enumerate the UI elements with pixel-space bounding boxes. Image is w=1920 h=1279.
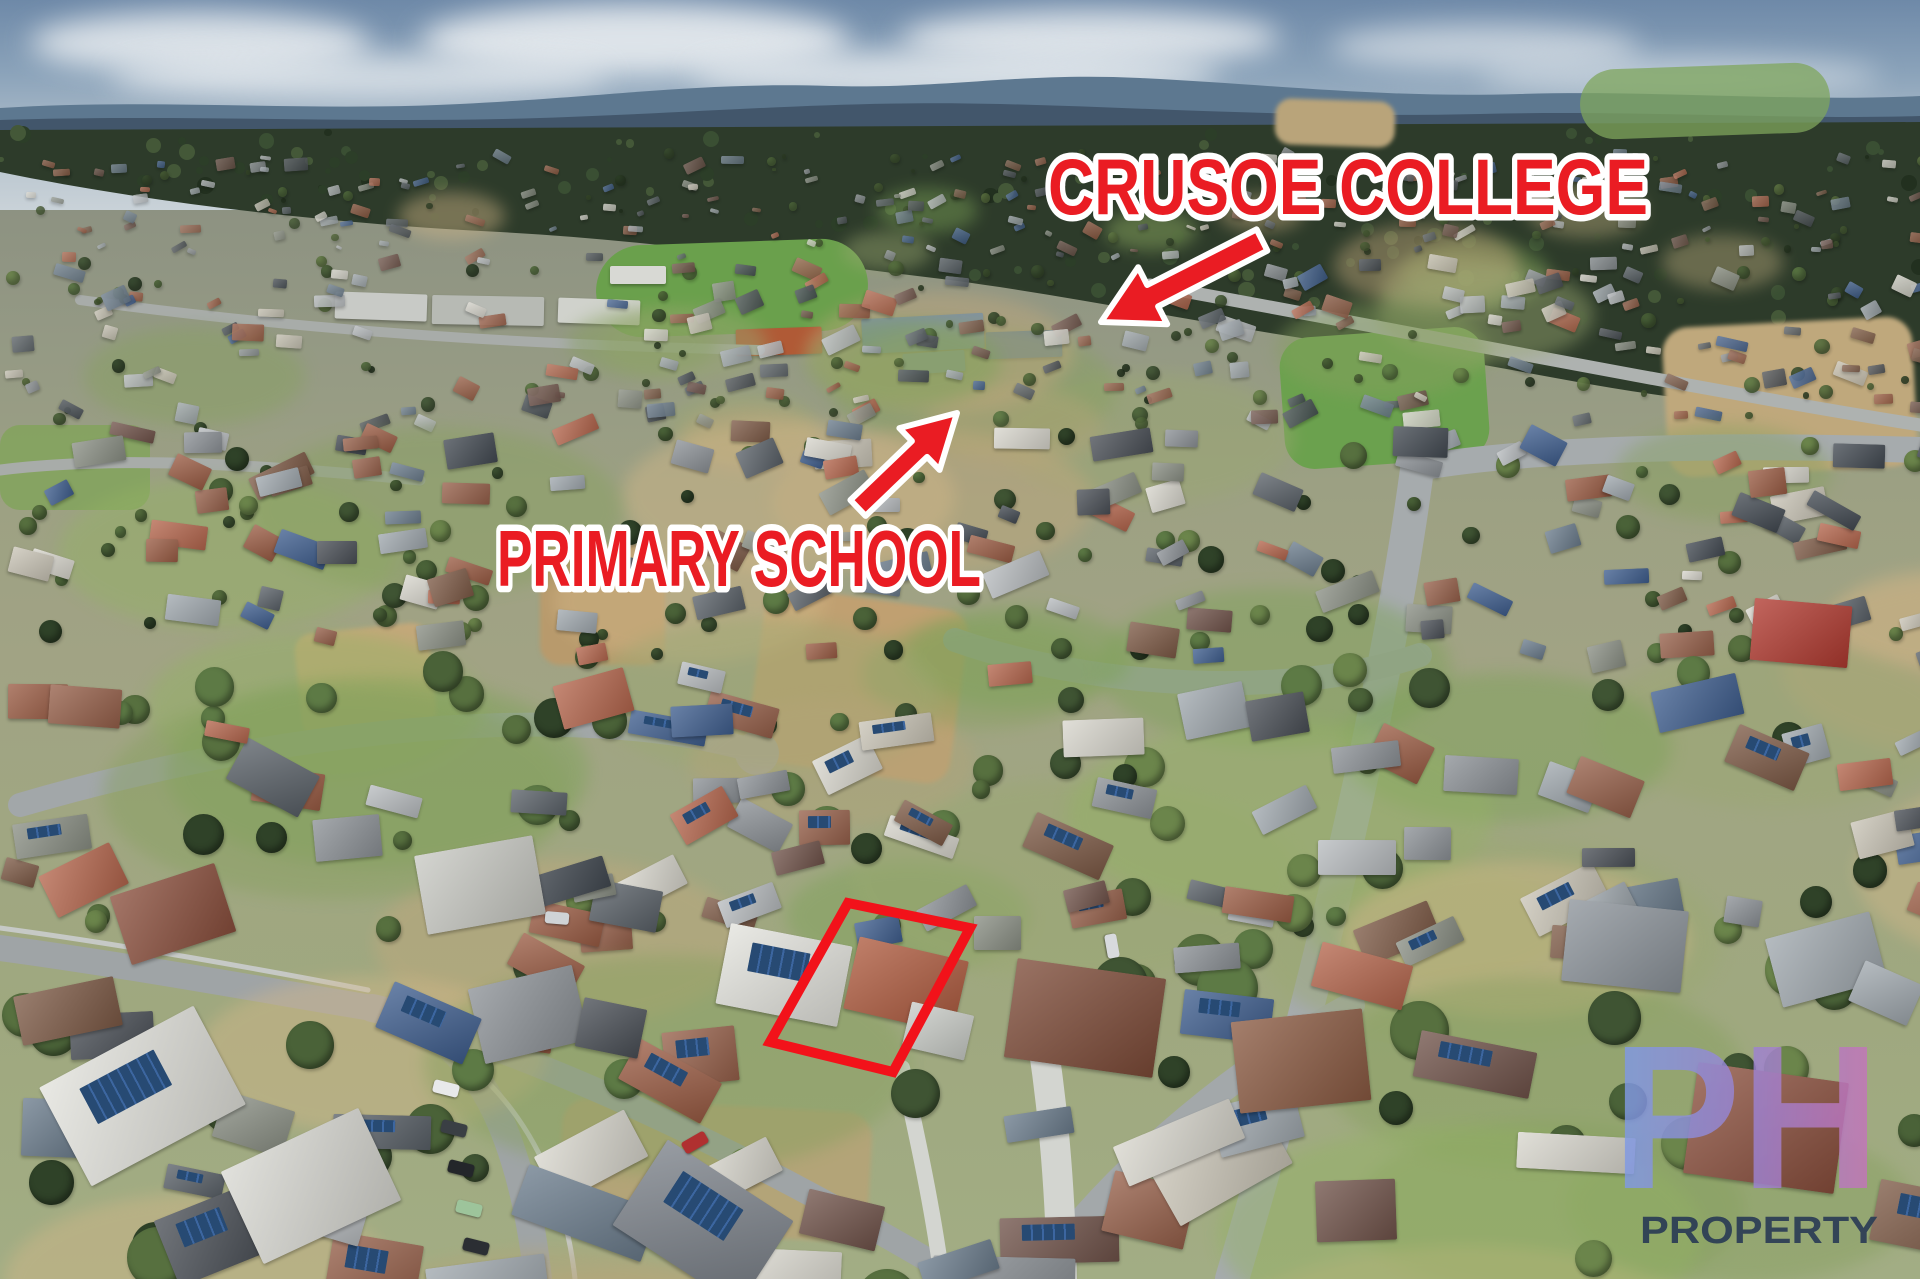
annotation-overlay: CRUSOE COLLEGE PRIMARY SCHOOL PH PROPERT… [0, 0, 1920, 1279]
property-highlight-box [770, 903, 970, 1072]
primary-school-label: PRIMARY SCHOOL [497, 514, 981, 603]
primary-school-arrow [850, 413, 957, 516]
crusoe-college-arrow [1101, 229, 1267, 324]
crusoe-college-label: CRUSOE COLLEGE [1048, 142, 1648, 231]
ph-logo-text: PH [1612, 1003, 1880, 1232]
ph-property-watermark: PH PROPERTY [1612, 1003, 1880, 1252]
property-wordmark: PROPERTY [1640, 1210, 1878, 1252]
aerial-photo: CRUSOE COLLEGE PRIMARY SCHOOL PH PROPERT… [0, 0, 1920, 1279]
